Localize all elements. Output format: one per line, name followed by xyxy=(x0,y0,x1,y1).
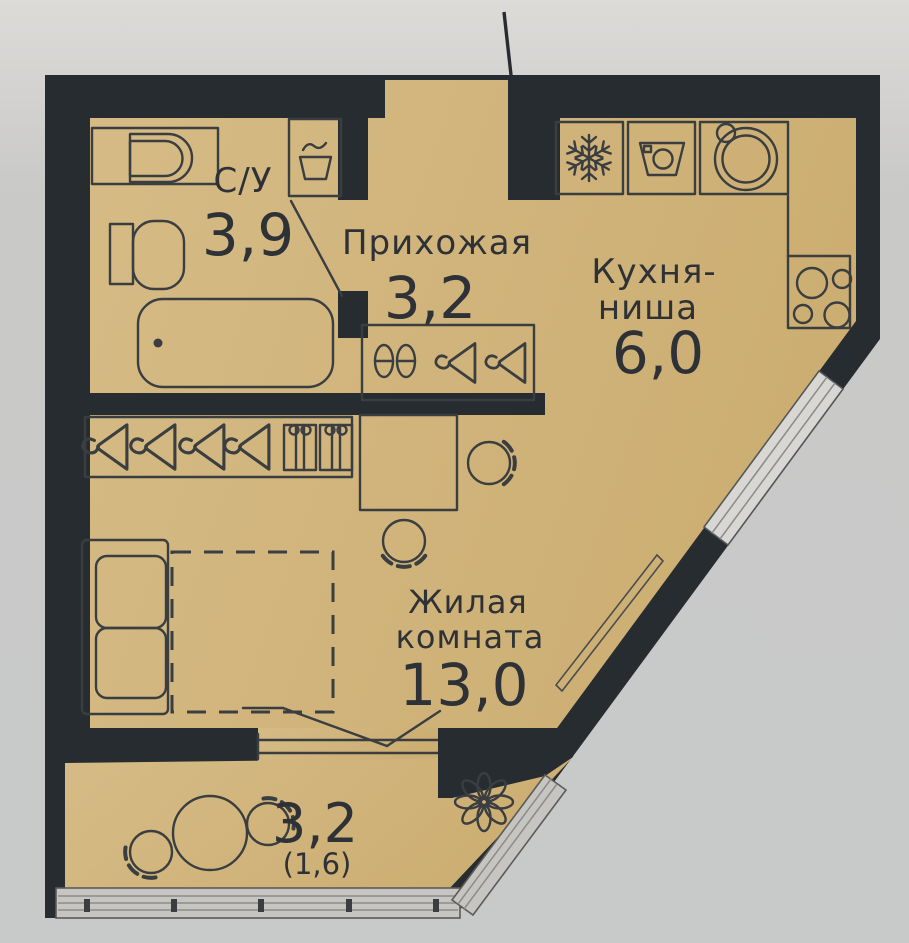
kitchen-label-line1: Кухня- xyxy=(591,252,716,292)
bathtub-drain xyxy=(154,339,163,348)
balcony-area-coefficient: (1,6) xyxy=(283,847,352,881)
wall-bathroom-bottom xyxy=(90,393,545,415)
hallway-label: Прихожая xyxy=(342,223,532,263)
floor-plan-svg: С/У 3,9 Прихожая 3,2 Кухня- ниша 6,0 Жил… xyxy=(0,0,909,943)
wall-bathroom-right-upper xyxy=(338,118,368,200)
bathroom-label: С/У xyxy=(214,161,273,201)
floor-plan-screenshot: С/У 3,9 Прихожая 3,2 Кухня- ниша 6,0 Жил… xyxy=(0,0,909,943)
living-area: 13,0 xyxy=(399,651,528,719)
wall-entry-kitchen-divider xyxy=(508,80,560,200)
balcony-area: 3,2 xyxy=(272,792,358,855)
wall-bathroom-right-stub xyxy=(338,291,368,338)
bathroom-area: 3,9 xyxy=(202,201,294,269)
kitchen-area: 6,0 xyxy=(612,319,704,387)
living-label-line1: Жилая xyxy=(408,583,528,621)
hallway-area: 3,2 xyxy=(384,264,476,332)
